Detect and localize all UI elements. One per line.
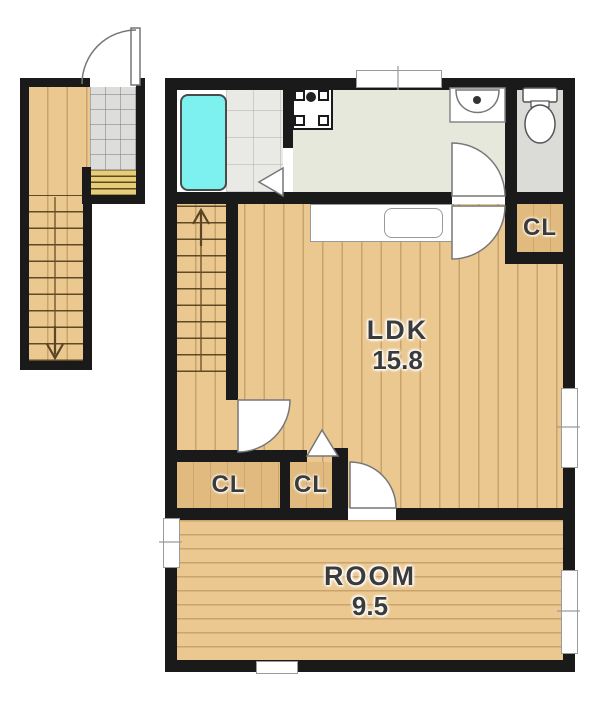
washroom-door-arc (452, 206, 505, 259)
closet-lower-left-label: CL (177, 462, 280, 508)
ldk-name: LDK (367, 316, 429, 346)
wash-basin (450, 88, 505, 122)
stairs-down-arrow-icon (47, 326, 63, 358)
closet-lower-middle-label: CL (290, 462, 332, 508)
closet-upper-right-label: CL (517, 204, 563, 252)
ldk-area: 15.8 (372, 346, 423, 375)
washroom-door-arc (452, 143, 505, 196)
stairs-up-arrow-icon (193, 210, 209, 246)
bedroom-door-arc (350, 462, 396, 508)
bathroom-folding-door-icon (259, 168, 283, 196)
bedroom-label: ROOM 9.5 (300, 552, 440, 630)
hall-door-arc (238, 400, 290, 452)
bedroom-area: 9.5 (352, 592, 388, 621)
bedroom-name: ROOM (324, 562, 416, 592)
floor-plan: LDK 15.8 ROOM 9.5 CL CL CL (0, 0, 600, 705)
closet-folding-door-icon (307, 430, 338, 456)
ldk-label: LDK 15.8 (330, 305, 465, 385)
entry-door-leaf (131, 28, 140, 85)
toilet (523, 88, 557, 143)
entry-door-arc (82, 30, 136, 84)
